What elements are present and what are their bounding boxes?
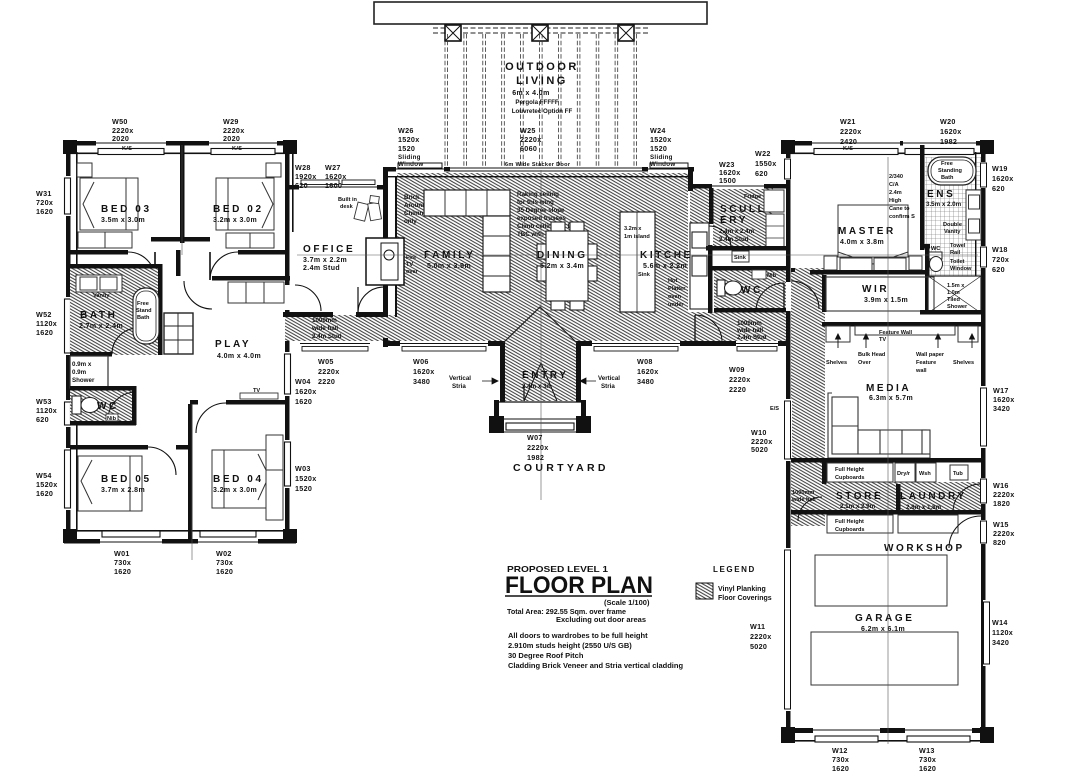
svg-text:LEGEND: LEGEND [713, 565, 756, 574]
svg-text:620: 620 [755, 169, 768, 178]
svg-text:BED 03: BED 03 [101, 204, 152, 215]
svg-text:1620: 1620 [216, 567, 233, 576]
svg-text:BED 04: BED 04 [213, 474, 264, 485]
svg-text:2.4m x 3m: 2.4m x 3m [522, 383, 552, 390]
svg-text:STORE: STORE [836, 491, 883, 502]
svg-text:Window: Window [950, 266, 972, 272]
svg-text:Stria: Stria [601, 383, 615, 390]
svg-text:Stand: Stand [136, 308, 152, 314]
svg-text:Vertical: Vertical [449, 375, 471, 382]
svg-text:FLOOR PLAN: FLOOR PLAN [505, 572, 653, 599]
svg-text:W24: W24 [650, 126, 666, 135]
svg-text:Dry/r: Dry/r [897, 471, 911, 477]
svg-text:3.2m x 3.0m: 3.2m x 3.0m [213, 487, 257, 494]
svg-text:2220x: 2220x [520, 135, 542, 144]
svg-text:wide hall: wide hall [311, 325, 338, 332]
svg-text:5.2m x 3.4m: 5.2m x 3.4m [540, 263, 584, 270]
svg-text:1620x: 1620x [637, 367, 659, 376]
svg-text:W02: W02 [216, 549, 232, 558]
svg-text:W50: W50 [112, 117, 128, 126]
svg-text:BED 05: BED 05 [101, 474, 152, 485]
svg-text:MEDIA: MEDIA [866, 383, 911, 394]
svg-text:1982: 1982 [940, 137, 957, 146]
svg-text:2220: 2220 [318, 377, 335, 386]
svg-text:730x: 730x [114, 558, 131, 567]
svg-text:Climb ceiling 2.7 Dry: Climb ceiling 2.7 Dry [517, 223, 578, 230]
svg-text:1620: 1620 [36, 328, 53, 337]
svg-text:K/S: K/S [122, 146, 132, 152]
svg-text:Floor Coverings: Floor Coverings [718, 595, 772, 602]
svg-text:Sink: Sink [734, 255, 747, 261]
svg-text:DINING: DINING [537, 250, 588, 261]
svg-text:2420: 2420 [840, 137, 857, 146]
svg-text:1550x: 1550x [755, 159, 777, 168]
svg-text:under: under [668, 302, 684, 308]
svg-text:2/340: 2/340 [889, 174, 903, 180]
svg-text:W27: W27 [325, 163, 341, 172]
svg-text:wide hall: wide hall [791, 497, 816, 503]
svg-text:2.4m Stud: 2.4m Stud [719, 236, 749, 243]
svg-text:Bath: Bath [941, 175, 954, 181]
svg-text:All doors to wardrobes to be f: All doors to wardrobes to be full height [508, 631, 648, 640]
svg-text:W04: W04 [295, 377, 311, 386]
svg-text:3.2m x: 3.2m x [624, 226, 642, 232]
svg-text:SCULL: SCULL [720, 204, 766, 215]
svg-text:W52: W52 [36, 310, 52, 319]
svg-text:Cupboards: Cupboards [835, 527, 865, 533]
svg-text:1620: 1620 [36, 207, 53, 216]
svg-text:Shower: Shower [72, 377, 95, 384]
svg-text:1120x: 1120x [36, 406, 57, 415]
svg-text:1.0m: 1.0m [947, 290, 960, 296]
svg-text:Sliding: Sliding [398, 154, 421, 161]
svg-text:Toilet: Toilet [950, 259, 965, 265]
svg-text:1620x: 1620x [295, 387, 317, 396]
svg-text:2.8m x 1.8m: 2.8m x 1.8m [906, 504, 942, 511]
svg-text:Bath: Bath [137, 315, 150, 321]
svg-text:2.4m: 2.4m [889, 190, 902, 196]
svg-text:6m Wide Stacker Door: 6m Wide Stacker Door [505, 162, 571, 168]
svg-text:5.0m x 3.9m: 5.0m x 3.9m [427, 263, 471, 270]
svg-text:Free: Free [137, 301, 149, 307]
svg-text:W28: W28 [295, 163, 311, 172]
svg-text:Full Height: Full Height [835, 519, 864, 525]
svg-text:Shelves: Shelves [826, 360, 847, 366]
svg-text:Louvretec Option FF: Louvretec Option FF [512, 108, 573, 115]
svg-text:Cane to: Cane to [889, 206, 910, 212]
svg-text:W26: W26 [398, 126, 414, 135]
svg-text:E/S: E/S [770, 406, 779, 412]
svg-text:Brick: Brick [404, 194, 420, 201]
svg-text:BED 02: BED 02 [213, 204, 264, 215]
svg-text:2.7m x 2.4m: 2.7m x 2.4m [79, 323, 123, 330]
svg-text:3.7m x 2.8m: 3.7m x 2.8m [101, 487, 145, 494]
svg-text:Around: Around [404, 202, 426, 209]
svg-text:1120x: 1120x [36, 319, 57, 328]
svg-text:3420: 3420 [993, 404, 1010, 413]
svg-text:Towel: Towel [950, 243, 966, 249]
svg-text:2.4m x 2.4m: 2.4m x 2.4m [719, 228, 755, 235]
svg-text:1520x: 1520x [295, 474, 317, 483]
svg-text:W25: W25 [520, 126, 536, 135]
svg-text:Free: Free [941, 161, 953, 167]
svg-text:2.1m x 2.9m: 2.1m x 2.9m [840, 503, 876, 510]
svg-text:1000mm: 1000mm [312, 317, 337, 324]
svg-text:W10: W10 [751, 428, 767, 437]
svg-text:1520x: 1520x [36, 480, 58, 489]
svg-text:720x: 720x [992, 255, 1009, 264]
svg-text:BATH: BATH [80, 310, 117, 321]
svg-text:wide hall: wide hall [736, 327, 763, 334]
svg-text:730x: 730x [216, 558, 233, 567]
svg-text:TV: TV [253, 388, 260, 394]
svg-text:WC: WC [931, 246, 940, 252]
svg-text:ERY: ERY [720, 215, 748, 226]
svg-text:C/A: C/A [889, 182, 899, 188]
svg-text:W54: W54 [36, 471, 52, 480]
svg-text:wall: wall [915, 368, 927, 374]
svg-text:5020: 5020 [751, 445, 768, 454]
svg-text:620: 620 [36, 415, 49, 424]
svg-text:Full Height: Full Height [835, 467, 864, 473]
svg-text:1982: 1982 [527, 453, 544, 462]
svg-text:Shelves: Shelves [953, 360, 974, 366]
svg-text:oven: oven [668, 294, 682, 300]
svg-text:over: over [406, 269, 419, 275]
svg-text:LIVING: LIVING [516, 75, 568, 87]
svg-text:K/S: K/S [232, 146, 242, 152]
svg-text:OUTDOOR: OUTDOOR [505, 61, 579, 73]
svg-text:620: 620 [992, 184, 1005, 193]
svg-text:3420: 3420 [992, 638, 1009, 647]
svg-text:2020: 2020 [223, 134, 240, 143]
svg-text:W07: W07 [527, 433, 543, 442]
svg-text:30 Degree Roof Pitch: 30 Degree Roof Pitch [508, 651, 584, 660]
svg-text:PLAY: PLAY [215, 339, 251, 350]
svg-text:Shower: Shower [947, 304, 968, 310]
svg-text:2020: 2020 [112, 134, 129, 143]
svg-text:Over: Over [858, 360, 872, 366]
svg-text:ENS: ENS [927, 189, 955, 200]
svg-text:TV: TV [406, 262, 413, 268]
svg-text:Stria: Stria [452, 383, 466, 390]
svg-text:Double: Double [943, 222, 962, 228]
svg-text:1600: 1600 [325, 181, 342, 190]
svg-text:0.9m: 0.9m [72, 369, 87, 376]
svg-text:6m x 4.0m: 6m x 4.0m [512, 90, 549, 97]
svg-text:W19: W19 [992, 164, 1008, 173]
svg-text:W15: W15 [993, 520, 1009, 529]
svg-text:TV: TV [879, 337, 886, 343]
svg-text:3.5m x 3.0m: 3.5m x 3.0m [101, 217, 145, 224]
svg-text:2.4m Stud: 2.4m Stud [303, 265, 340, 272]
svg-text:ENTRY: ENTRY [522, 370, 569, 381]
svg-text:Tub: Tub [953, 471, 963, 477]
svg-text:desk: desk [340, 204, 354, 210]
svg-text:1520: 1520 [650, 144, 667, 153]
svg-text:0.9m x: 0.9m x [72, 361, 92, 368]
svg-text:1620: 1620 [919, 764, 936, 773]
svg-text:Feature: Feature [916, 360, 936, 366]
svg-text:1620x: 1620x [940, 127, 962, 136]
svg-text:High: High [889, 198, 902, 204]
svg-text:Window: Window [650, 161, 675, 168]
svg-text:FAMILY: FAMILY [424, 250, 475, 261]
svg-text:Bulk Head: Bulk Head [858, 352, 886, 358]
svg-text:WIR: WIR [862, 284, 889, 295]
svg-text:1620x: 1620x [992, 174, 1014, 183]
svg-text:Vanity: Vanity [93, 293, 110, 299]
svg-text:Vinyl Planking: Vinyl Planking [718, 586, 766, 593]
svg-text:W14: W14 [992, 618, 1008, 627]
svg-text:Tiled: Tiled [947, 297, 961, 303]
svg-text:730x: 730x [832, 755, 849, 764]
svg-text:1520x: 1520x [650, 135, 672, 144]
svg-text:only: only [404, 218, 417, 225]
svg-text:2220: 2220 [729, 385, 746, 394]
svg-text:Nib: Nib [767, 273, 777, 279]
svg-text:W53: W53 [36, 397, 52, 406]
svg-text:Fire: Fire [406, 255, 416, 261]
svg-text:1000mm: 1000mm [792, 490, 814, 496]
svg-text:Sink: Sink [638, 272, 651, 278]
svg-text:2.4m Stud: 2.4m Stud [737, 334, 767, 341]
svg-text:4.0m x 4.0m: 4.0m x 4.0m [217, 353, 261, 360]
svg-text:W01: W01 [114, 549, 130, 558]
svg-text:1520x: 1520x [398, 135, 420, 144]
svg-text:3.2m x 3.0m: 3.2m x 3.0m [213, 217, 257, 224]
svg-text:Nib: Nib [107, 416, 117, 422]
svg-text:1620: 1620 [36, 489, 53, 498]
svg-text:W22: W22 [755, 149, 771, 158]
svg-text:5.6m x 2.2m: 5.6m x 2.2m [643, 263, 687, 270]
svg-text:W17: W17 [993, 386, 1009, 395]
svg-text:2220x: 2220x [993, 529, 1015, 538]
svg-text:1520: 1520 [295, 484, 312, 493]
svg-text:Raking ceiling: Raking ceiling [517, 191, 559, 198]
svg-text:Wsh: Wsh [919, 471, 931, 477]
svg-text:3.7m x 2.2m: 3.7m x 2.2m [303, 257, 347, 264]
svg-text:2220x: 2220x [527, 443, 549, 452]
svg-text:720x: 720x [36, 198, 53, 207]
svg-text:2.4m Stud: 2.4m Stud [312, 333, 342, 340]
svg-text:820: 820 [993, 538, 1006, 547]
svg-text:1620x: 1620x [413, 367, 435, 376]
svg-text:Window: Window [398, 161, 423, 168]
svg-text:COURTYARD: COURTYARD [513, 462, 609, 474]
svg-text:2220x: 2220x [840, 127, 862, 136]
svg-text:2220x: 2220x [729, 375, 751, 384]
svg-text:1000mm: 1000mm [737, 320, 762, 327]
svg-text:2220x: 2220x [750, 632, 772, 641]
svg-text:W18: W18 [992, 245, 1008, 254]
svg-text:6060: 6060 [520, 144, 537, 153]
svg-text:for this wing: for this wing [517, 199, 554, 206]
svg-text:Fridge: Fridge [744, 194, 761, 200]
svg-text:OFFICE: OFFICE [303, 244, 355, 255]
svg-text:Sliding: Sliding [650, 154, 673, 161]
svg-text:Platter: Platter [668, 286, 686, 292]
svg-text:1620: 1620 [114, 567, 131, 576]
svg-text:1620x: 1620x [993, 395, 1015, 404]
svg-text:WORKSHOP: WORKSHOP [884, 543, 965, 554]
svg-text:WC: WC [97, 401, 119, 412]
svg-text:GARAGE: GARAGE [855, 613, 915, 624]
svg-text:Built in: Built in [338, 197, 358, 203]
svg-text:5020: 5020 [750, 642, 767, 651]
svg-text:K/S: K/S [843, 146, 853, 152]
svg-text:W29: W29 [223, 117, 239, 126]
svg-text:W08: W08 [637, 357, 653, 366]
svg-text:1620: 1620 [295, 397, 312, 406]
svg-text:1500: 1500 [719, 176, 736, 185]
svg-text:exposed trusses: exposed trusses [517, 215, 566, 222]
svg-text:W09: W09 [729, 365, 745, 374]
svg-text:2220x: 2220x [993, 490, 1015, 499]
svg-text:Pergola FFFFF: Pergola FFFFF [515, 99, 559, 106]
svg-text:1m island: 1m island [624, 234, 650, 240]
svg-text:620: 620 [295, 181, 308, 190]
svg-text:W11: W11 [750, 622, 765, 631]
svg-text:Excluding out door areas: Excluding out door areas [556, 615, 646, 624]
svg-text:1520: 1520 [398, 144, 415, 153]
svg-text:1120x: 1120x [992, 628, 1013, 637]
svg-text:2.910m studs height (2550 U/S: 2.910m studs height (2550 U/S GB) [508, 641, 632, 650]
svg-text:W20: W20 [940, 117, 956, 126]
svg-text:Cupboards: Cupboards [835, 475, 865, 481]
svg-text:Vertical: Vertical [598, 375, 620, 382]
svg-text:WC: WC [741, 285, 763, 296]
svg-text:Feature Wall: Feature Wall [879, 330, 912, 336]
svg-text:Standing: Standing [938, 168, 963, 174]
svg-text:3.9m x 1.5m: 3.9m x 1.5m [864, 297, 908, 304]
svg-text:1.5m x: 1.5m x [947, 283, 965, 289]
svg-text:1620: 1620 [832, 764, 849, 773]
svg-text:730x: 730x [919, 755, 936, 764]
svg-text:1620x: 1620x [325, 172, 347, 181]
svg-text:W03: W03 [295, 464, 311, 473]
svg-text:(Scale 1/100): (Scale 1/100) [604, 598, 650, 607]
svg-text:620: 620 [992, 265, 1005, 274]
svg-text:6.3m x 5.7m: 6.3m x 5.7m [869, 395, 913, 402]
svg-text:Vanity: Vanity [944, 229, 961, 235]
svg-text:2220x: 2220x [318, 367, 340, 376]
svg-text:W13: W13 [919, 746, 935, 755]
svg-text:W05: W05 [318, 357, 334, 366]
svg-text:3.5m x 2.0m: 3.5m x 2.0m [926, 201, 962, 208]
svg-text:confirm S: confirm S [889, 214, 915, 220]
svg-text:Wall paper: Wall paper [916, 352, 945, 358]
svg-text:W16: W16 [993, 481, 1009, 490]
svg-text:1920x: 1920x [295, 172, 317, 181]
svg-text:W06: W06 [413, 357, 429, 366]
svg-text:W31: W31 [36, 189, 52, 198]
svg-text:3480: 3480 [637, 377, 654, 386]
svg-text:W21: W21 [840, 117, 856, 126]
svg-text:W12: W12 [832, 746, 848, 755]
svg-text:LAUNDRY: LAUNDRY [900, 491, 967, 502]
svg-text:Hot: Hot [668, 278, 677, 284]
svg-text:Cladding Brick Veneer and Stri: Cladding Brick Veneer and Stria vertical… [508, 661, 683, 670]
svg-text:1820: 1820 [993, 499, 1010, 508]
svg-text:3480: 3480 [413, 377, 430, 386]
